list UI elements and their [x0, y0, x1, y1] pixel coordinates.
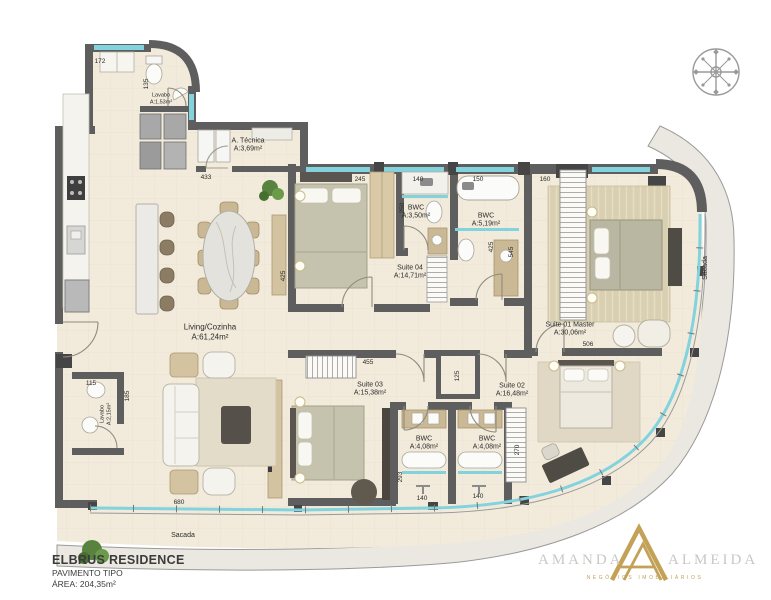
- room-label-lavabo-bottom: Lavabo A:2,15m²: [99, 403, 112, 425]
- dimension-135: 135: [143, 79, 151, 90]
- room-area: A:2,15m²: [106, 403, 113, 425]
- room-name: Lavabo: [99, 403, 106, 425]
- dimension-545: 545: [508, 247, 516, 258]
- room-area: A:30,06m²: [545, 330, 594, 338]
- room-name: A. Técnica: [232, 138, 265, 146]
- room-area: A:5,19m²: [472, 221, 500, 229]
- dimension-425-bwc: 425: [488, 242, 496, 253]
- room-label-suite03: Suite 03 A:15,38m²: [354, 382, 386, 399]
- compass-rose: [693, 49, 739, 95]
- room-label-living: Living/Cozinha A:61,24m²: [184, 322, 236, 341]
- dimension-455: 455: [363, 359, 374, 367]
- dimension-172: 172: [95, 58, 106, 66]
- room-label-bwc-suite02: BWC A:4,08m²: [473, 436, 501, 453]
- room-area: A:16,48m²: [496, 391, 528, 399]
- dimension-150: 150: [473, 176, 484, 184]
- room-name: Suite 03: [354, 382, 386, 390]
- dimension-506: 506: [583, 341, 594, 349]
- room-area: A:3,50m²: [402, 213, 430, 221]
- dimension-245: 245: [355, 176, 366, 184]
- room-area: A:4,08m²: [410, 444, 438, 452]
- brand-first-name: AMANDA: [538, 552, 624, 569]
- dimension-270: 270: [514, 445, 522, 456]
- dimension-125: 125: [454, 371, 462, 382]
- dimension-185: 185: [124, 391, 132, 402]
- dimension-433: 433: [201, 174, 212, 182]
- room-label-sacada-right: Sacada: [702, 256, 710, 280]
- room-name: Suite 04: [394, 265, 426, 273]
- room-label-sacada-bottom: Sacada: [171, 532, 195, 540]
- room-area: A:3,69m²: [232, 146, 265, 154]
- dimension-140-bwc1: 140: [417, 495, 428, 503]
- room-name: BWC: [473, 436, 501, 444]
- floorplan-drawing: [0, 0, 771, 600]
- room-name: Suite 01 Master: [545, 322, 594, 330]
- dimension-140-top: 140: [413, 176, 424, 184]
- room-label-suite01: Suite 01 Master A:30,06m²: [545, 322, 594, 339]
- room-label-bwc-suite03: BWC A:4,08m²: [410, 436, 438, 453]
- suite01-furniture: [548, 170, 682, 347]
- dimension-140-bwc2: 140: [473, 493, 484, 501]
- room-label-suite02: Suite 02 A:16,48m²: [496, 383, 528, 400]
- brand-logo: AMANDA ALMEIDA NEGÓCIOS IMOBILIÁRIOS: [520, 528, 770, 592]
- room-label-lavabo-top: Lavabo A:1,53m²: [150, 92, 172, 105]
- project-title: ELBRUS RESIDENCE: [52, 553, 185, 567]
- room-name: Suite 02: [496, 383, 528, 391]
- dimension-115: 115: [86, 380, 96, 388]
- room-area: A:15,38m²: [354, 390, 386, 398]
- title-block: ELBRUS RESIDENCE PAVIMENTO TIPO ÁREA: 20…: [52, 553, 185, 589]
- room-label-suite04: Suite 04 A:14,71m²: [394, 265, 426, 282]
- room-area: A:1,53m²: [150, 99, 172, 106]
- room-area: A:14,71m²: [394, 273, 426, 281]
- dimension-250: 250: [399, 203, 407, 214]
- dimension-293: 293: [397, 472, 405, 483]
- brand-tagline: NEGÓCIOS IMOBILIÁRIOS: [520, 575, 770, 581]
- room-area: A:61,24m²: [184, 332, 236, 342]
- brand-last-name: ALMEIDA: [668, 552, 758, 569]
- dimension-160: 160: [540, 176, 551, 184]
- room-area: A:4,08m²: [473, 444, 501, 452]
- room-name: BWC: [410, 436, 438, 444]
- dimension-425-suite04: 425: [280, 271, 288, 282]
- total-area: ÁREA: 204,35m²: [52, 579, 185, 589]
- floorplan-canvas: Lavabo A:1,53m² A. Técnica A:3,69m² Livi…: [0, 0, 771, 600]
- room-name: Living/Cozinha: [184, 322, 236, 332]
- room-label-bwc-social: BWC A:5,19m²: [472, 213, 500, 230]
- room-name: Lavabo: [150, 92, 172, 99]
- floor-type: PAVIMENTO TIPO: [52, 568, 185, 578]
- room-name: BWC: [472, 213, 500, 221]
- dimension-680: 680: [174, 499, 185, 507]
- hall-closet: [427, 256, 447, 302]
- room-label-a-tecnica: A. Técnica A:3,69m²: [232, 138, 265, 155]
